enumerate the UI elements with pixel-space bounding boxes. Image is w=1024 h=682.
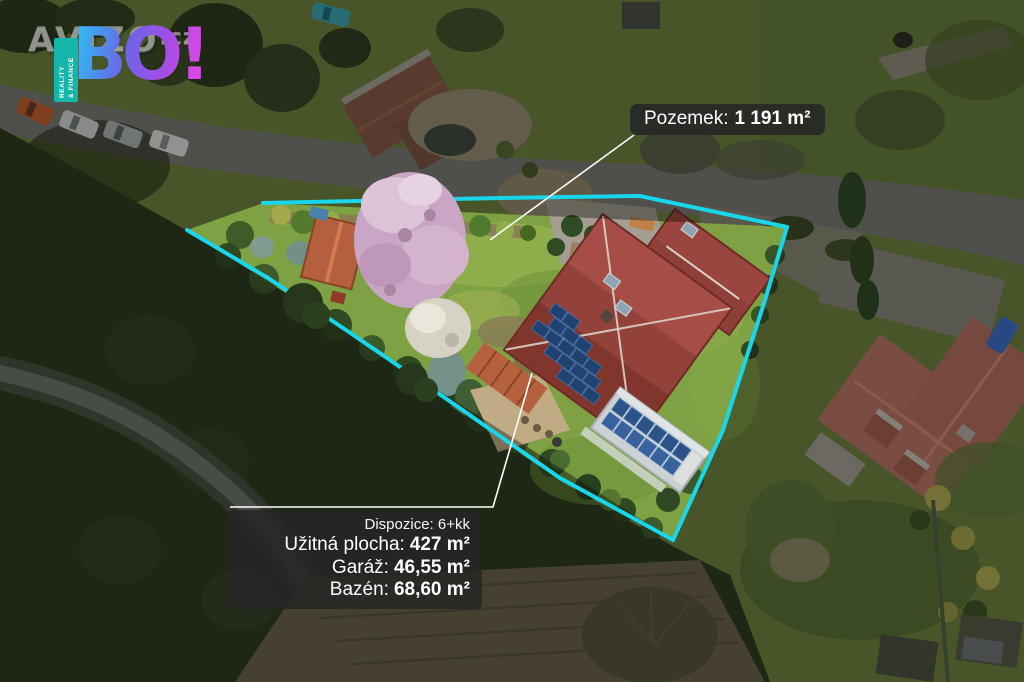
info-row-pool: Bazén:68,60 m² <box>238 579 470 602</box>
info-row-garage: Garáž:46,55 m² <box>238 557 470 580</box>
brand-logo-text: BO! <box>72 18 206 90</box>
property-info-box: Dispozice: 6+kk Užitná plocha:427 m² Gar… <box>228 510 482 609</box>
land-label-value: 1 191 m² <box>734 108 810 129</box>
aerial-photo <box>0 0 1024 682</box>
tagline-line1: REALITY <box>59 66 66 98</box>
info-row-usable-area: Užitná plocha:427 m² <box>238 534 470 557</box>
white-blossom-bush <box>405 298 471 358</box>
screenshot-root: AVIZO.cz REALITY & FINANCE BO! Pozemek:1… <box>0 0 1024 682</box>
land-area-label: Pozemek:1 191 m² <box>630 104 825 135</box>
disposition-row: Dispozice: 6+kk <box>238 515 470 534</box>
land-label-text: Pozemek: <box>644 108 728 129</box>
